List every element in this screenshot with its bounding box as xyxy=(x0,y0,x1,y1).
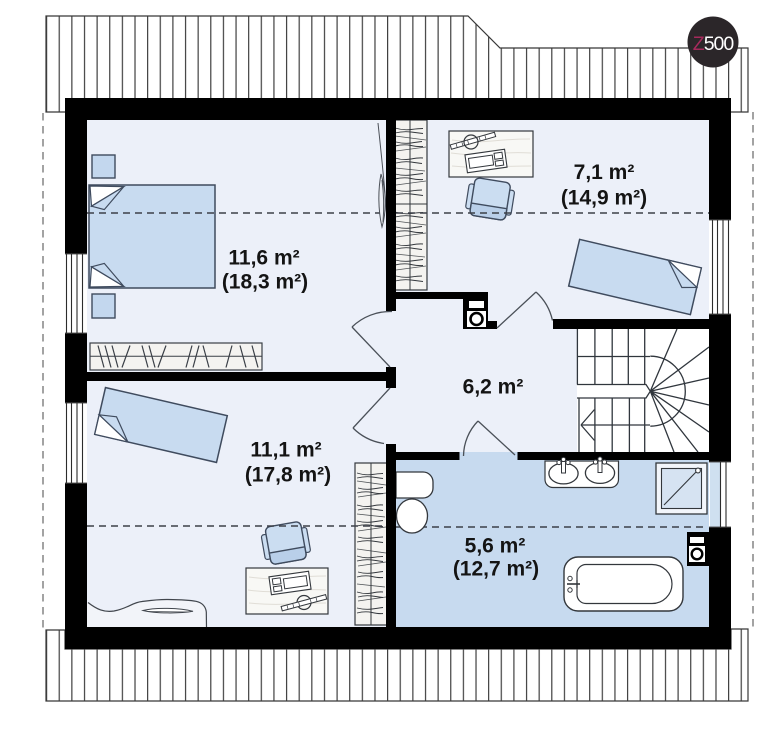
svg-text:5,6 m²: 5,6 m² xyxy=(465,535,526,558)
svg-text:11,1 m²: 11,1 m² xyxy=(250,439,321,462)
svg-text:Z500: Z500 xyxy=(693,33,735,55)
svg-text:11,6 m²: 11,6 m² xyxy=(228,247,299,270)
svg-text:(14,9 m²): (14,9 m²) xyxy=(561,187,647,210)
svg-text:6,2 m²: 6,2 m² xyxy=(463,376,524,399)
svg-text:7,1 m²: 7,1 m² xyxy=(574,161,635,184)
svg-text:(17,8 m²): (17,8 m²) xyxy=(245,464,331,487)
svg-text:(18,3 m²): (18,3 m²) xyxy=(222,271,308,294)
svg-text:(12,7 m²): (12,7 m²) xyxy=(453,558,539,581)
